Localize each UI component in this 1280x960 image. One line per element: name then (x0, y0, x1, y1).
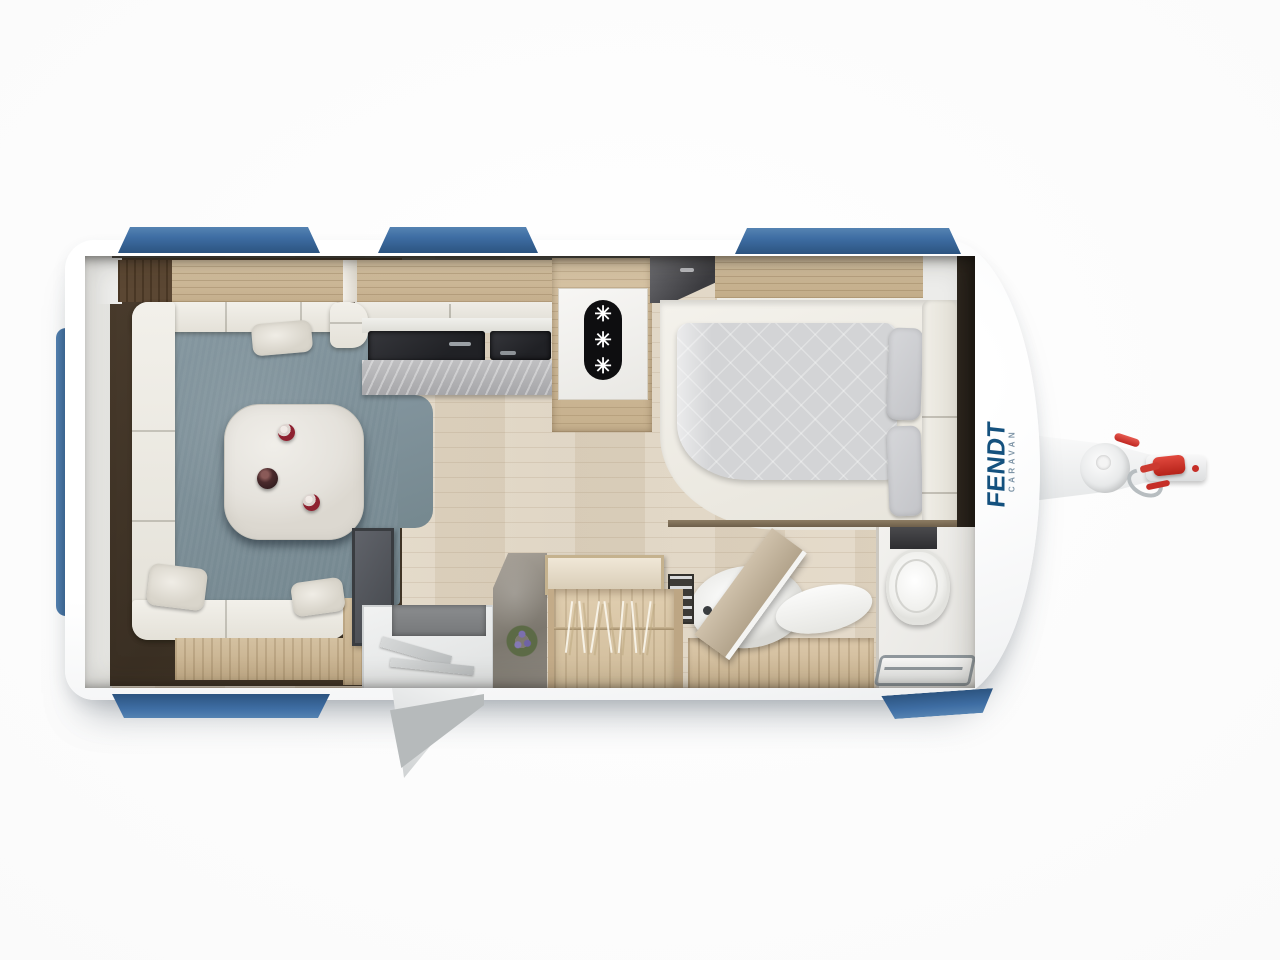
window-top-3 (735, 228, 961, 254)
toilet (886, 549, 950, 625)
clothes-rail (554, 627, 674, 630)
corner-cabinet (650, 256, 720, 303)
bed-duvet (677, 323, 897, 480)
wine-glass-1 (278, 424, 295, 441)
lounge-carpet-extension (398, 395, 433, 528)
snowflake-icon: ✳ (594, 354, 612, 379)
entry-step-mat (392, 605, 486, 636)
kitchen-sink (368, 331, 485, 362)
sofa-pillow-1 (251, 319, 314, 356)
bed-side-cushions (922, 300, 957, 527)
bed-overhead-locker (715, 256, 930, 298)
lavender-wreath (505, 622, 539, 660)
caravan-floorplan: ✳ ✳ ✳ (0, 0, 1280, 960)
jockey-wheel-mount (1080, 443, 1130, 493)
dinette-table (224, 404, 364, 540)
shower-drain (874, 655, 975, 686)
bed-side-wall (957, 256, 975, 530)
lounge-side-wall (85, 256, 112, 688)
wine-bottle (257, 468, 278, 489)
bed-pillow-1 (886, 327, 923, 420)
sofa-pillow-2 (146, 563, 209, 612)
stone-partition (493, 553, 547, 688)
snowflake-icon: ✳ (594, 328, 612, 353)
brand-subtitle: CARAVAN (1008, 421, 1017, 501)
bed-pillow-2 (886, 425, 923, 516)
toilet-cistern (890, 527, 937, 549)
sofa-wood-front (175, 638, 345, 680)
window-bottom-1 (112, 694, 330, 718)
window-top-1 (118, 227, 320, 253)
kitchen-counter-front (362, 360, 556, 395)
wardrobe-interior (548, 589, 683, 688)
snowflake-icon: ✳ (594, 302, 612, 327)
overhead-locker-lounge-kitchen (172, 260, 555, 302)
interior-floor: ✳ ✳ ✳ (85, 256, 975, 688)
kitchen-hob (490, 331, 551, 360)
sofa-pillow-3 (290, 577, 346, 618)
bathroom-divider-wall (668, 520, 957, 527)
wine-glass-2 (303, 494, 320, 511)
fridge-freezer-panel: ✳ ✳ ✳ (584, 300, 622, 380)
window-top-2 (378, 227, 538, 253)
dark-wood-cabinet-panel (118, 260, 172, 302)
